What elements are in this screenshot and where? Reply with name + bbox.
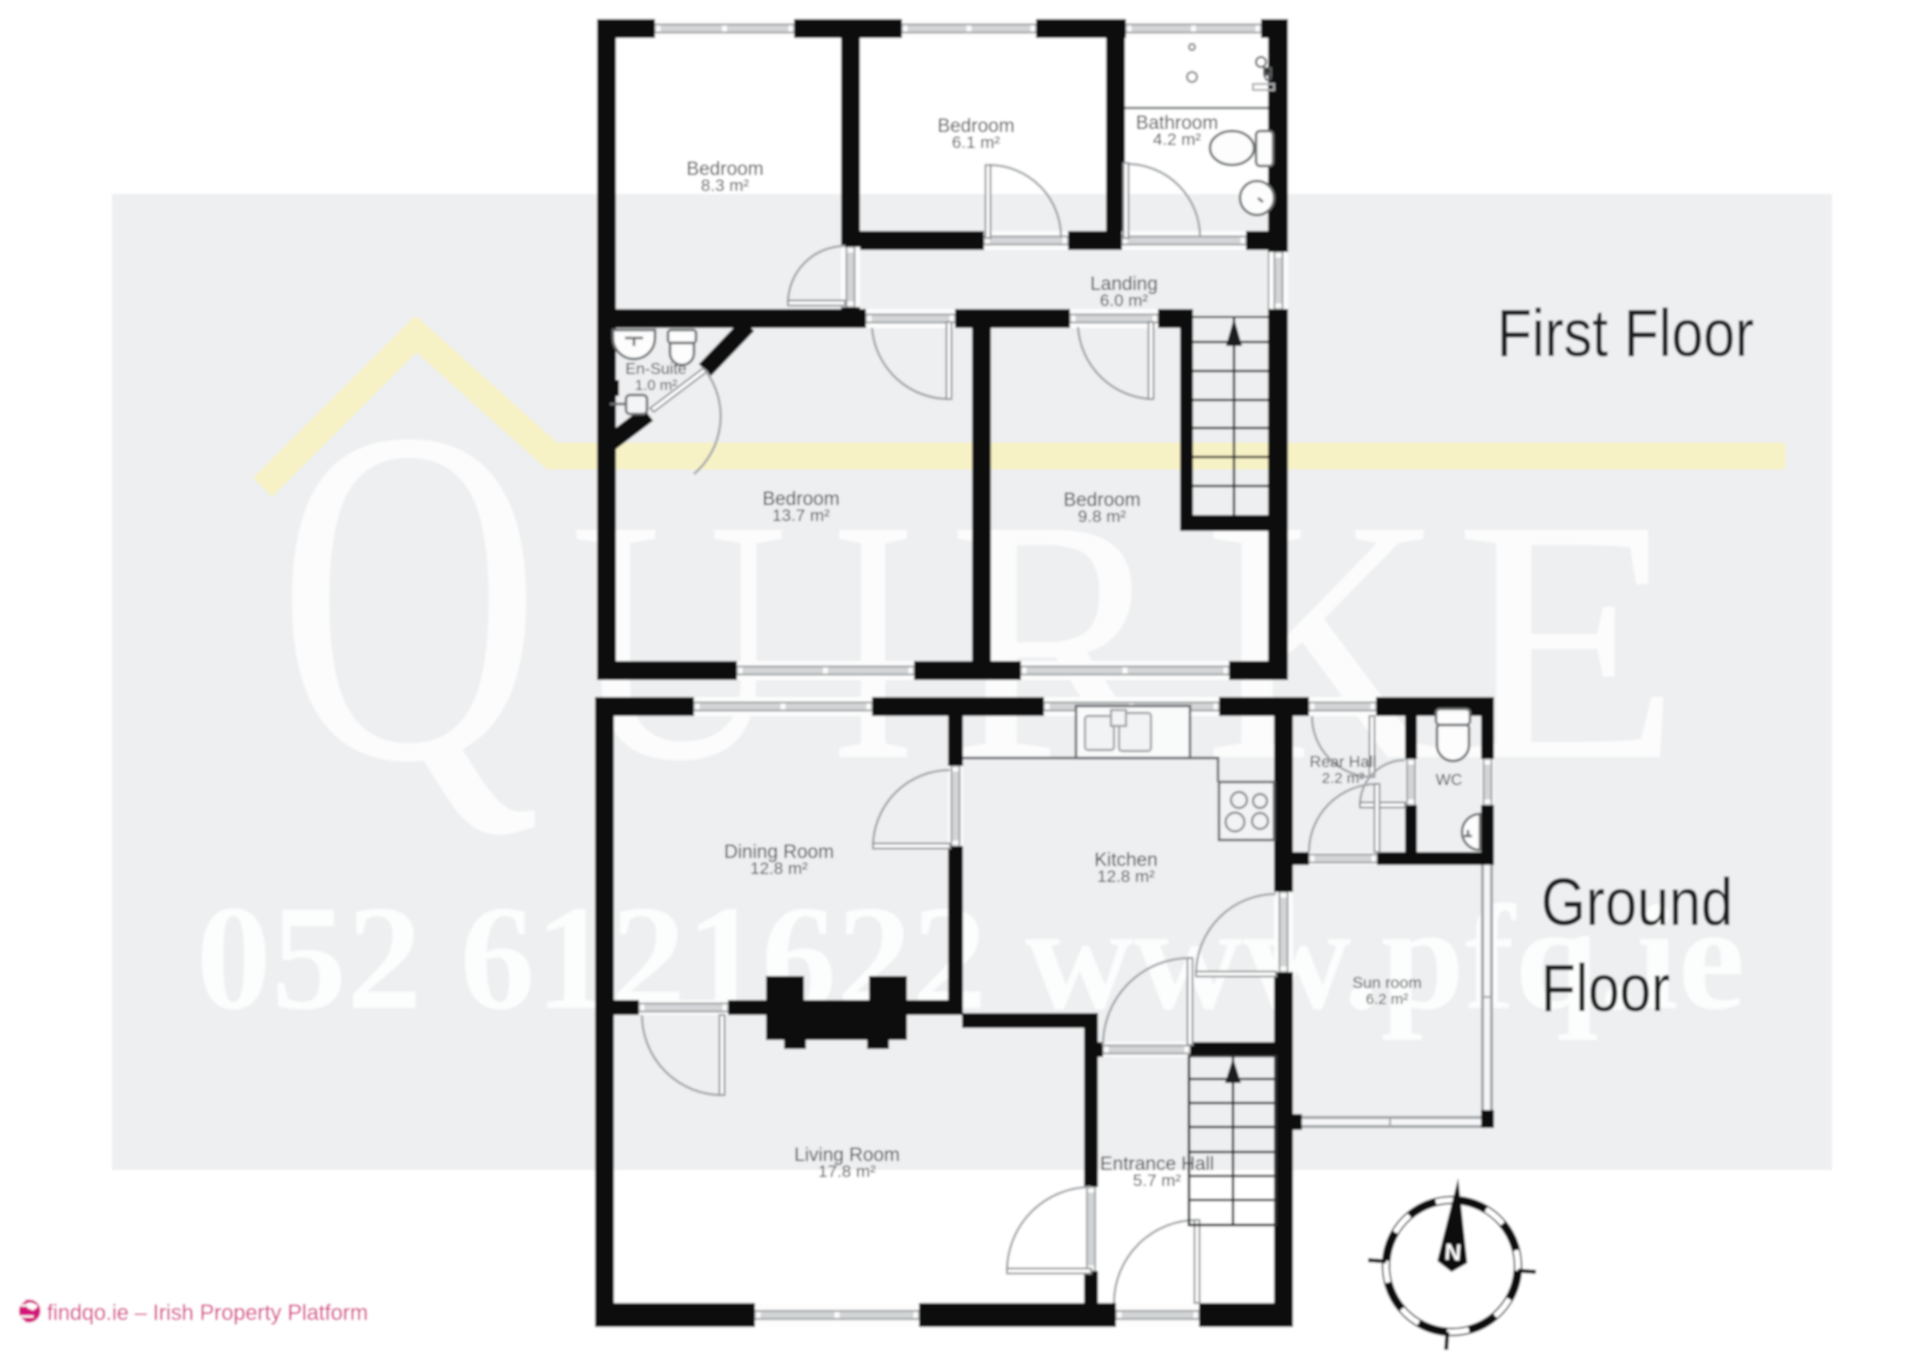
svg-text:I: I — [830, 449, 916, 833]
svg-text:1.0 m²: 1.0 m² — [635, 377, 678, 394]
svg-text:2.2 m²: 2.2 m² — [1322, 770, 1365, 787]
svg-text:5.7 m²: 5.7 m² — [1133, 1171, 1182, 1190]
svg-text:WC: WC — [1436, 772, 1463, 789]
svg-text:6.0 m²: 6.0 m² — [1100, 291, 1149, 310]
svg-text:17.8 m²: 17.8 m² — [818, 1162, 876, 1181]
svg-text:En-Suite: En-Suite — [625, 361, 686, 378]
svg-text:Floor: Floor — [1541, 951, 1670, 1026]
svg-text:First Floor: First Floor — [1497, 296, 1754, 371]
svg-text:Ground: Ground — [1541, 865, 1733, 940]
svg-text:4.2 m²: 4.2 m² — [1153, 130, 1202, 149]
svg-text:6.2 m²: 6.2 m² — [1366, 991, 1409, 1008]
svg-text:12.8 m²: 12.8 m² — [1097, 867, 1155, 886]
svg-text:12.8 m²: 12.8 m² — [750, 859, 808, 878]
svg-text:Q: Q — [277, 329, 541, 861]
svg-text:6.1 m²: 6.1 m² — [952, 133, 1001, 152]
svg-text:Rear Hall: Rear Hall — [1310, 754, 1377, 771]
svg-text:13.7 m²: 13.7 m² — [772, 506, 830, 525]
svg-text:findqo.ie – Irish Property Pla: findqo.ie – Irish Property Platform — [47, 1300, 368, 1325]
svg-text:Sun room: Sun room — [1352, 975, 1421, 992]
svg-text:N: N — [1444, 1238, 1462, 1265]
svg-text:9.8 m²: 9.8 m² — [1078, 507, 1127, 526]
svg-text:8.3 m²: 8.3 m² — [701, 176, 750, 195]
